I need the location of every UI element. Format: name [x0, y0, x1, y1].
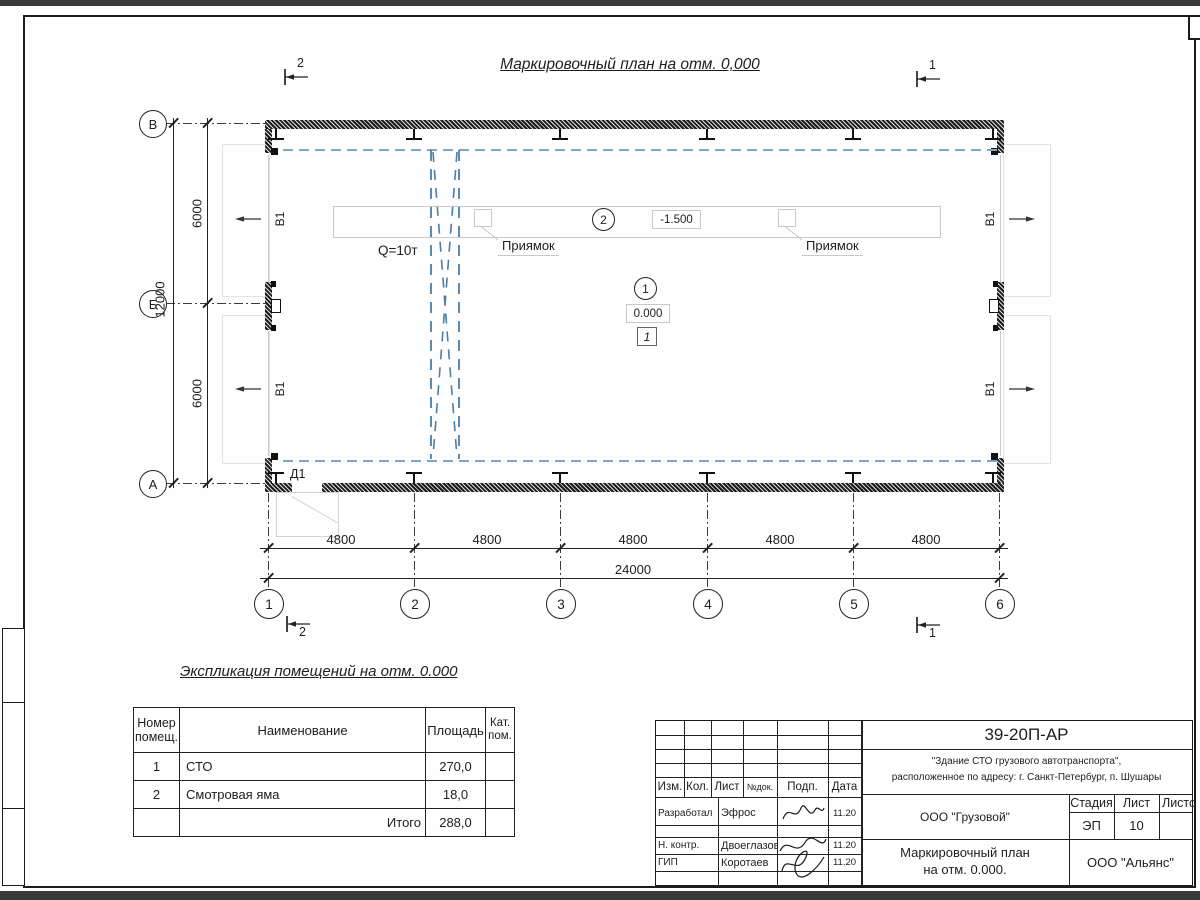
- tb-col: Дата: [828, 777, 861, 797]
- arrow-left-icon: [234, 384, 262, 394]
- drawing-sheet: Маркировочный план на отм. 0,000 2 1 2 1…: [0, 0, 1200, 900]
- window-line: [268, 155, 269, 282]
- axis-circle-row-a: А: [139, 470, 167, 498]
- grid-line: [414, 493, 415, 589]
- wall-foot: [271, 453, 278, 460]
- cell-area: 270,0: [425, 752, 485, 780]
- axis-circle-col-6: 6: [985, 589, 1015, 619]
- pit-elevation: -1.500: [652, 210, 701, 229]
- page-bottom-edge: [0, 891, 1200, 900]
- tb-sheets-label: Листов: [1159, 794, 1195, 812]
- grid-line: [707, 493, 708, 589]
- pier-cap: [271, 325, 276, 331]
- margin-box-3: [2, 808, 25, 886]
- tb-name: Двоеглазов: [721, 837, 777, 854]
- tb-name: Эфрос: [721, 801, 777, 825]
- signature-icon: [780, 799, 826, 825]
- dim-label-12000: 12000: [153, 270, 168, 330]
- grid-line: [560, 493, 561, 589]
- section-mark-1-bottom-icon: [914, 616, 942, 634]
- column-symbol: [845, 472, 861, 483]
- window-line: [1000, 155, 1001, 282]
- cell-num: 1: [134, 752, 179, 780]
- pit-recess-2: [778, 209, 796, 227]
- corner-box: [1188, 15, 1200, 40]
- dim-label-6000-upper: 6000: [190, 184, 205, 244]
- tb-role: ГИП: [658, 854, 718, 871]
- tb-org: ООО "Альянс": [1069, 839, 1192, 885]
- column-symbol: [699, 472, 715, 483]
- pit-label-1: Приямок: [498, 238, 559, 256]
- axis-line-b: [166, 303, 274, 304]
- tb-col: Подп.: [777, 777, 828, 797]
- dim-label: 4800: [750, 532, 810, 547]
- tb-line: [656, 763, 861, 764]
- door-swing: [276, 492, 339, 537]
- column-symbol: [406, 472, 422, 483]
- col-header-area: Площадь: [425, 708, 485, 752]
- crane-runway-bottom: [283, 460, 997, 462]
- margin-box-2: [2, 702, 25, 810]
- tb-col: Лист: [711, 777, 743, 797]
- arrow-right-icon: [1008, 214, 1036, 224]
- margin-box-1: [2, 628, 25, 704]
- window-mark: В1: [983, 205, 997, 233]
- tb-line: [656, 871, 861, 872]
- axis-circle-col-1: 1: [254, 589, 284, 619]
- tb-name: Коротаев: [721, 854, 777, 871]
- tb-role: Н. контр.: [658, 837, 718, 854]
- col-header-num: Номерпомещ.: [134, 708, 179, 752]
- window-mark: В1: [273, 205, 287, 233]
- tb-doc-line2: на отм. 0.000.: [861, 859, 1069, 879]
- pier-notch: [271, 299, 281, 313]
- tb-date: 11.20: [828, 837, 861, 854]
- cell-total-label: Итого: [179, 808, 425, 836]
- floor-elevation: 0.000: [626, 304, 670, 323]
- tb-date: 11.20: [828, 854, 861, 871]
- tb-line: [656, 797, 861, 798]
- pier-cap: [993, 325, 998, 331]
- section-label: 2: [297, 56, 304, 70]
- explication-title: Экспликация помещений на отм. 0.000: [180, 663, 457, 680]
- dim-line-12000: [173, 118, 174, 488]
- dim-label: 4800: [311, 532, 371, 547]
- column-symbol: [699, 129, 715, 140]
- axis-circle-col-3: 3: [546, 589, 576, 619]
- dim-label: 4800: [603, 532, 663, 547]
- pier-cap: [993, 281, 998, 287]
- dim-label-total: 24000: [593, 562, 673, 577]
- pier-notch: [989, 299, 999, 313]
- column-symbol: [552, 472, 568, 483]
- tb-line: [861, 749, 1192, 750]
- room-mark-1: 1: [634, 277, 657, 300]
- wall-foot: [271, 148, 278, 155]
- dim-label: 4800: [457, 532, 517, 547]
- pier-cap: [271, 281, 276, 287]
- tb-col: Изм.: [656, 777, 684, 797]
- crane-capacity-label: Q=10т: [378, 243, 418, 258]
- tb-object-line2: расположенное по адресу: г. Санкт-Петерб…: [866, 767, 1187, 787]
- wall-top: [265, 120, 1004, 129]
- floor-type-mark: 1: [637, 327, 657, 346]
- pit-label-2: Приямок: [802, 238, 863, 256]
- tb-sheets-value: [1159, 812, 1192, 839]
- tb-stage-value: ЭП: [1069, 812, 1114, 839]
- tb-sheet-label: Лист: [1114, 794, 1159, 812]
- plan-title: Маркировочный план на отм. 0,000: [440, 56, 820, 74]
- door-mark: Д1: [290, 467, 305, 481]
- column-symbol: [552, 129, 568, 140]
- window-mark: В1: [983, 375, 997, 403]
- cell-name: Смотровая яма: [179, 780, 425, 808]
- cell-name: СТО: [179, 752, 425, 780]
- tb-stage-label: Стадия: [1069, 794, 1114, 812]
- section-mark-2-bottom-icon: [284, 615, 312, 633]
- tb-line: [656, 825, 861, 826]
- room-mark-2: 2: [592, 208, 615, 231]
- axis-circle-row-v: В: [139, 110, 167, 138]
- column-symbol: [985, 129, 1001, 140]
- section-label: 2: [299, 625, 306, 639]
- cell-area: 18,0: [425, 780, 485, 808]
- column-symbol: [268, 129, 284, 140]
- grid-line: [853, 493, 854, 589]
- column-symbol: [406, 129, 422, 140]
- tb-line: [718, 797, 719, 885]
- tb-line: [656, 735, 861, 736]
- dim-label-6000-lower: 6000: [190, 364, 205, 424]
- tb-col: №док.: [743, 777, 777, 797]
- axis-circle-col-2: 2: [400, 589, 430, 619]
- axis-circle-col-4: 4: [693, 589, 723, 619]
- cell-cat: [485, 780, 514, 808]
- col-header-cat: Кат.пом.: [485, 708, 514, 752]
- signature-icon: [776, 833, 828, 881]
- column-symbol: [268, 472, 284, 483]
- title-block: Изм. Кол. Лист №док. Подп. Дата Разработ…: [655, 720, 1193, 886]
- wall-bottom-left: [265, 483, 292, 492]
- axis-circle-col-5: 5: [839, 589, 869, 619]
- tb-date: 11.20: [828, 801, 861, 825]
- window-line: [1000, 331, 1001, 456]
- dim-label: 4800: [896, 532, 956, 547]
- explication-table: Номерпомещ. Наименование Площадь Кат.пом…: [133, 707, 515, 837]
- section-label: 1: [929, 58, 936, 72]
- cell-cat: [485, 752, 514, 780]
- column-symbol: [845, 129, 861, 140]
- section-mark-1-top-icon: [914, 70, 942, 88]
- column-symbol: [985, 472, 1001, 483]
- wall-foot: [991, 453, 998, 460]
- tb-document-code: 39-20П-АР: [861, 721, 1192, 749]
- tb-role: Разработал: [658, 801, 718, 825]
- axis-line-v: [166, 123, 272, 124]
- cell-total-area: 288,0: [425, 808, 485, 836]
- col-header-name: Наименование: [179, 708, 425, 752]
- tb-col: Кол.: [684, 777, 711, 797]
- pit-recess-1: [474, 209, 492, 227]
- crane-runway-top: [283, 149, 997, 151]
- arrow-left-icon: [234, 214, 262, 224]
- dim-line-4800: [260, 548, 1008, 549]
- page-top-edge: [0, 0, 1200, 6]
- cell-empty: [134, 808, 179, 836]
- window-line: [268, 331, 269, 456]
- wall-bottom: [322, 483, 1004, 492]
- cell-num: 2: [134, 780, 179, 808]
- window-mark: В1: [273, 375, 287, 403]
- cell-cat: [485, 808, 514, 836]
- inspection-pit: [333, 206, 941, 238]
- tb-client: ООО "Грузовой": [861, 794, 1069, 839]
- tb-line: [656, 749, 861, 750]
- arrow-right-icon: [1008, 384, 1036, 394]
- dim-line-24000: [260, 578, 1008, 579]
- tb-sheet-value: 10: [1114, 812, 1159, 839]
- section-label: 1: [929, 626, 936, 640]
- section-mark-2-top-icon: [282, 68, 310, 86]
- crane-bridge-icon: [423, 148, 467, 462]
